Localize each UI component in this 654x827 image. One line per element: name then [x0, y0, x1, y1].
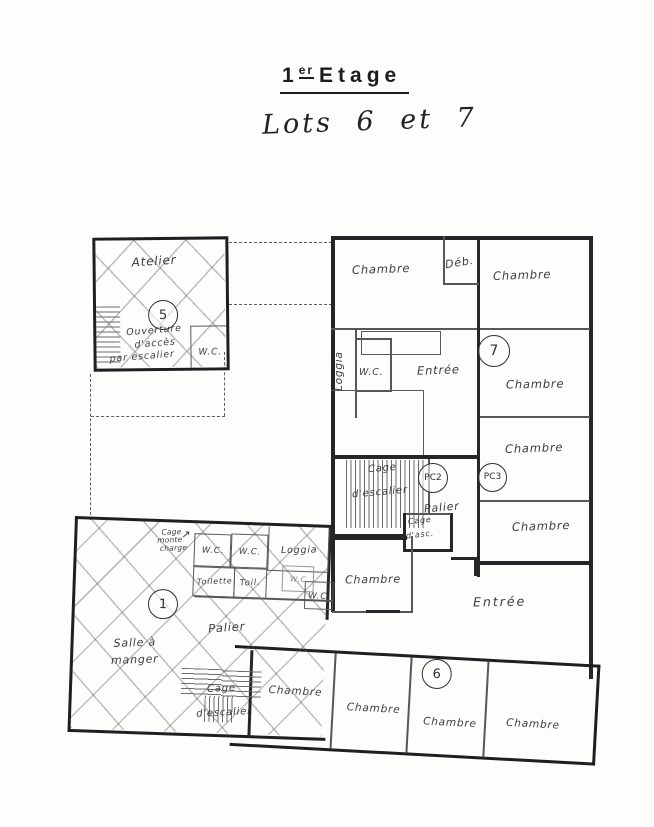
room-label-escalier-1: d'escalier — [196, 707, 252, 720]
room-label-toil: Toil. — [240, 579, 261, 588]
lot-badge-pc2: PC2 — [418, 463, 448, 493]
room-label-loggia-7: Loggia — [334, 299, 345, 391]
room-label-chambre-3: Chambre — [423, 716, 477, 729]
wall — [480, 328, 590, 330]
room-wc-2: W.C. — [230, 533, 268, 569]
title-word: Etage — [319, 64, 401, 87]
room-label-chambre-4: Chambre — [506, 718, 560, 731]
wall — [332, 534, 406, 538]
room-label-chambre-e3: Chambre — [512, 520, 571, 534]
dashed-link-bottom — [229, 304, 332, 305]
room-label-chambre-2: Chambre — [347, 702, 401, 715]
wall — [405, 658, 412, 753]
room-label-toilette: Toilette — [197, 577, 233, 586]
room-toil: Toil. — [233, 567, 267, 599]
wall — [451, 557, 476, 560]
wall — [480, 416, 590, 418]
room-label-chambre-e1: Chambre — [506, 378, 564, 391]
label-monte-charge-3: charge — [160, 544, 187, 552]
dashed-link-top — [229, 242, 332, 243]
wall — [411, 536, 413, 613]
title-number: 1 — [282, 64, 299, 87]
room-label-cage-asc-1: Cage — [408, 516, 432, 526]
room-label-chambre-ne: Chambre — [493, 269, 552, 283]
wall — [443, 283, 479, 285]
dashed-courtyard-left — [90, 374, 91, 520]
room-label-chambre-e2: Chambre — [505, 442, 564, 456]
wall — [477, 236, 480, 577]
wall — [330, 653, 337, 748]
monte-charge-arrow-icon: ↗ — [181, 529, 191, 540]
room-label-wc-7: W.C. — [359, 368, 384, 378]
lot-badge-7: 7 — [478, 335, 510, 367]
dashed-courtyard-bottom — [91, 416, 225, 417]
room-label-palier-core: Palier — [424, 500, 460, 514]
room-label-salle-2: manger — [111, 653, 159, 666]
room-label-palier-1: Palier — [208, 621, 246, 635]
room-label-wc-4: W.C. — [308, 592, 331, 601]
wall — [478, 561, 592, 565]
page-subtitle: Lots 6 et 7 — [262, 102, 478, 140]
room-label-cage-asc-2: d'asc. — [406, 530, 435, 541]
wall — [331, 236, 593, 240]
wall — [450, 513, 453, 552]
lot-badge-1: 1 — [147, 589, 178, 620]
room-label-wc-2: W.C. — [239, 548, 262, 557]
lot-badge-6: 6 — [421, 658, 453, 690]
wall — [331, 455, 478, 459]
room-label-atelier: Atelier — [131, 254, 177, 269]
wall — [366, 610, 400, 613]
room-label-cage-1: Cage — [207, 683, 236, 694]
wall — [331, 328, 477, 330]
wall — [480, 500, 590, 502]
room-label-deb: Déb. — [444, 255, 474, 270]
floor-plan-page: 1erEtage Lots 6 et 7 Chambre Déb. Chambr… — [0, 0, 654, 827]
room-wc-4: W.C. — [304, 581, 334, 610]
lot-badge-pc3: PC3 — [478, 463, 507, 492]
room-outline — [331, 390, 424, 455]
room-label-wc-5: W.C. — [198, 348, 221, 357]
room-label-loggia-1: Loggia — [281, 546, 318, 556]
room-label-chambre-nw: Chambre — [352, 263, 411, 277]
room-label-chambre-w: Chambre — [345, 574, 401, 586]
title-ordinal: er — [299, 63, 314, 79]
page-title: 1erEtage — [280, 64, 409, 94]
room-label-entree-7: Entrée — [417, 364, 460, 377]
room-wc-5: W.C. — [190, 325, 226, 367]
closet-outline — [361, 331, 441, 355]
lot5-atelier-block: Atelier 5 Ouverture d'accès par escalier… — [92, 236, 229, 371]
room-wc-1: W.C. — [193, 533, 231, 568]
wall — [589, 236, 593, 679]
room-label-wc-1: W.C. — [202, 546, 225, 555]
room-label-entree-6: Entrée — [473, 596, 526, 609]
wall — [482, 662, 489, 757]
room-label-salle-1: Salle à — [113, 636, 156, 648]
lot1-block: Cage monte charge ↗ W.C. W.C. Loggia Toi… — [67, 516, 332, 741]
wall — [474, 557, 477, 576]
room-toilette: Toilette — [192, 565, 235, 597]
